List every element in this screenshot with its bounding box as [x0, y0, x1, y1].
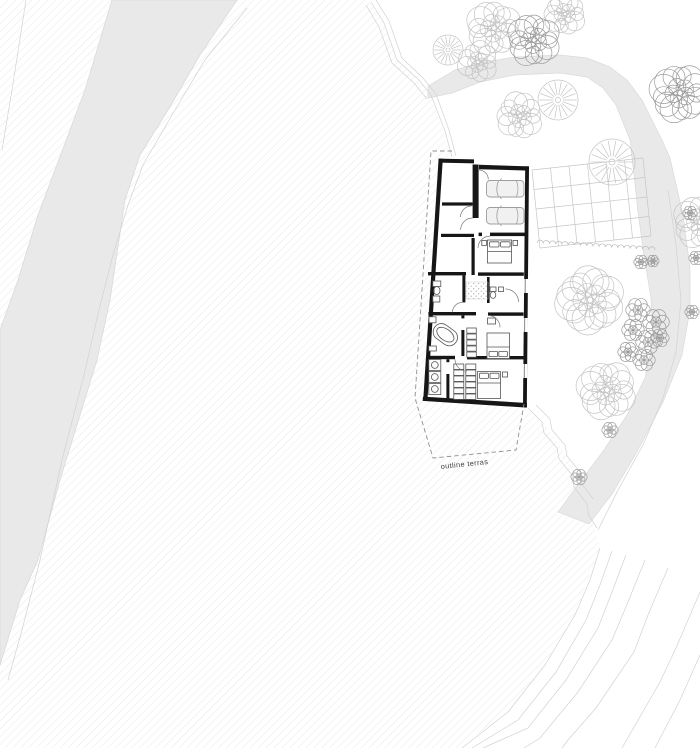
shower-stipple-area [466, 282, 488, 299]
building-floor-plan [423, 159, 529, 408]
site-plan-svg: outline terras [0, 0, 700, 748]
site-plan-canvas: outline terras [0, 0, 700, 748]
car [487, 179, 525, 200]
car [487, 206, 525, 227]
